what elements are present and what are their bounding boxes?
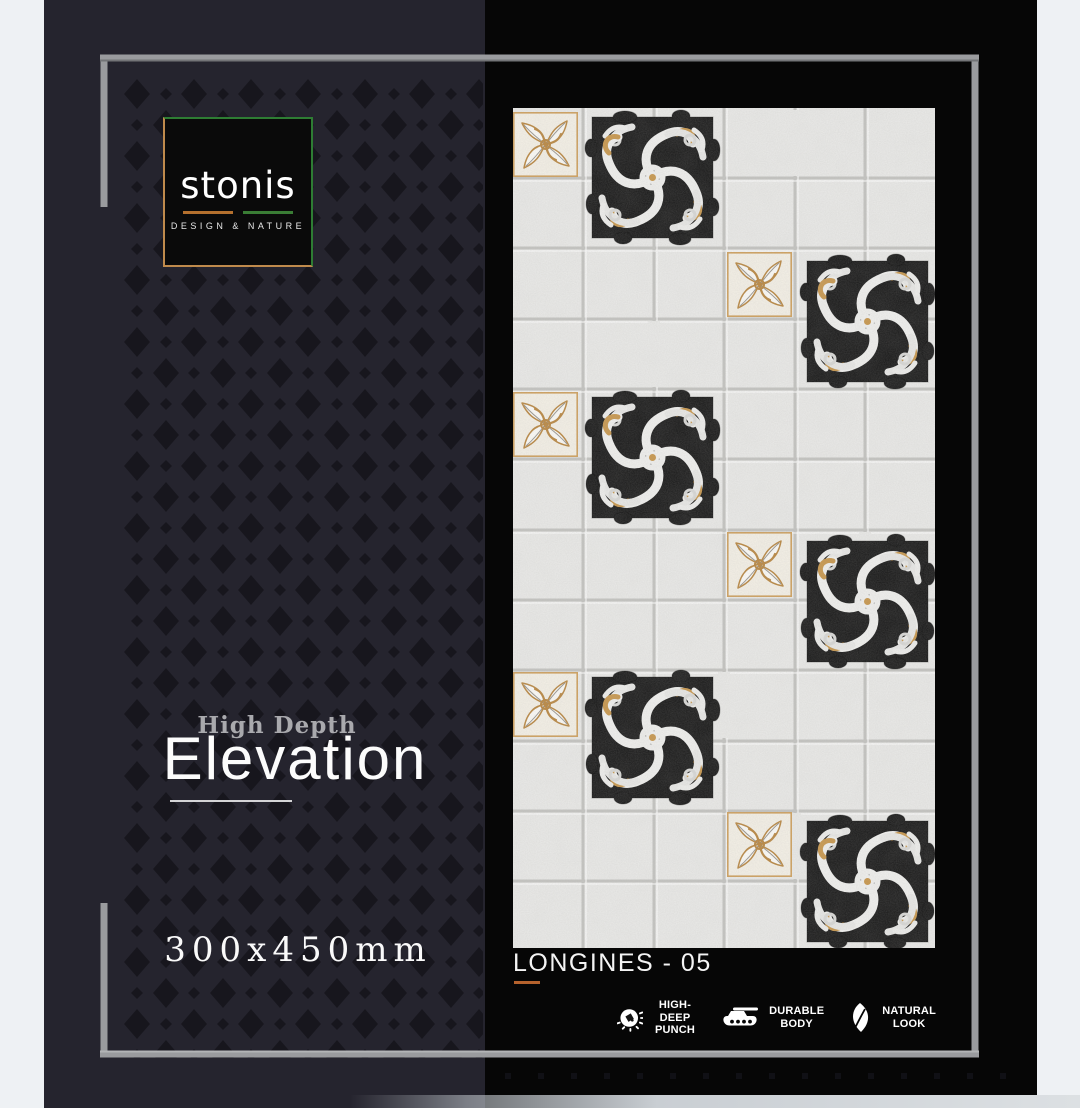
punch-icon xyxy=(617,1001,643,1035)
tile-swatch-image xyxy=(513,108,935,948)
feature-label: HIGH-DEEP PUNCH xyxy=(651,999,699,1038)
series-title-underline xyxy=(170,800,292,802)
feature-label: DURABLE BODY xyxy=(769,1005,824,1031)
tank-icon xyxy=(721,1004,761,1032)
feature-natural-look: NATURAL LOOK xyxy=(846,1001,936,1035)
feature-high-deep-punch: HIGH-DEEP PUNCH xyxy=(617,999,699,1038)
series-title: Elevation xyxy=(150,726,440,792)
logo-bar-orange xyxy=(183,211,233,214)
feature-badges: HIGH-DEEP PUNCH DURABLE BODY xyxy=(630,995,936,1041)
tile-size-label: 300x450mm xyxy=(152,930,444,970)
product-name-underline xyxy=(514,981,540,984)
faint-dot-row xyxy=(505,1073,1031,1079)
catalog-page: stonis DESIGN & NATURE High Depth Elevat… xyxy=(0,0,1080,1108)
bottom-edge-highlight xyxy=(350,1095,1080,1108)
brand-name: stonis xyxy=(180,167,295,204)
brand-tagline: DESIGN & NATURE xyxy=(171,221,305,231)
product-name: LONGINES - 05 xyxy=(513,949,712,978)
feature-label: NATURAL LOOK xyxy=(882,1005,936,1031)
brand-logo: stonis DESIGN & NATURE xyxy=(163,117,313,267)
logo-bar-green xyxy=(243,211,293,214)
feature-durable-body: DURABLE BODY xyxy=(721,1004,824,1032)
logo-underline-bars xyxy=(183,211,293,214)
leaf-icon xyxy=(846,1001,874,1035)
